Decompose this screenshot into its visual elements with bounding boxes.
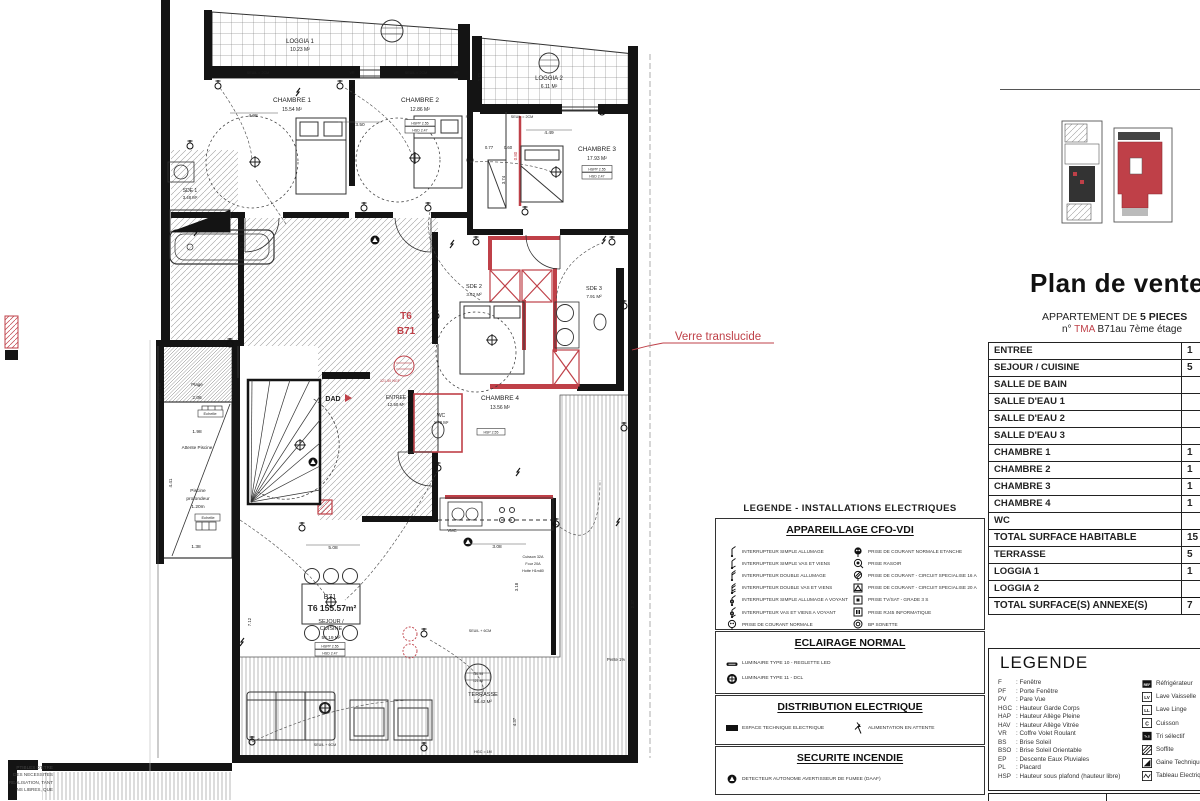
dcl-icon (726, 673, 738, 685)
plan-label: Plage (191, 382, 203, 387)
plan-label: CHAMBRE 2 (401, 97, 439, 104)
plan-label: HSPP 2.55 (588, 168, 605, 172)
margin-disclaimer-text: PTIBLES D'ETREDES NECESSITESREALISATION,… (0, 764, 53, 794)
plan-label: CHAMBRE 3 (578, 146, 616, 153)
plan-label: 1.20m (191, 504, 204, 510)
plan-label: 4.37 (512, 717, 517, 726)
appliance-item: Gaine Technique (1142, 756, 1200, 769)
sonnette-icon (852, 618, 864, 630)
abbrev-item: HAP: Hauteur Allège Pleine (998, 713, 1120, 722)
soffite-hatch-icon (1142, 745, 1152, 755)
plan-label: 4.49 (544, 130, 554, 136)
electrical-legend-item: PRISE DE COURANT - CIRCUIT SPECIALISE 20… (852, 582, 982, 594)
plan-label: PF (466, 115, 471, 119)
abbrev-item: PL: Placard (998, 764, 1120, 773)
plan-label: SEUIL = 2CM (405, 71, 428, 75)
electrical-legend-item: PRISE RASOIR (852, 557, 982, 569)
surface-table-row: CHAMBRE 21 (989, 461, 1200, 478)
plan-label: 0.60 (504, 145, 513, 150)
plan-label: HGC = 1M (474, 750, 492, 754)
electrical-legend-item: PRISE DE COURANT - CIRCUIT SPECIALISE 16… (852, 569, 982, 581)
surface-table-row: ENTREE1 (989, 342, 1200, 359)
plan-label: DAD (325, 396, 340, 403)
plan-label: HSPP 2.55 (411, 122, 428, 126)
abbrev-item: PF: Porte Fenêtre (998, 688, 1120, 697)
key-plan-location (1112, 124, 1174, 224)
outlet-icon (726, 618, 738, 630)
appliance-item: LVLave Vaisselle (1142, 690, 1200, 703)
ref-box-icon: REF (1142, 679, 1152, 689)
plan-label: 4.98 (248, 113, 258, 119)
plan-label: T6 155.57m² (308, 603, 357, 613)
plan-label: 7.12 (247, 617, 252, 626)
plan-label: HSPP 2.55 (321, 645, 338, 649)
plan-label: CHAMBRE 1 (273, 97, 311, 104)
surface-table-row: SALLE D'EAU 3 (989, 427, 1200, 444)
surface-table-row: LOGGIA 11 (989, 563, 1200, 580)
plan-label: 54.19 M² (322, 635, 341, 641)
plan-label: 0.80 (513, 151, 518, 160)
surface-table-row: LOGGIA 2 (989, 580, 1200, 597)
plan-label: 2.37 (630, 599, 635, 608)
appliance-item: Tableau Electrique (1142, 769, 1200, 782)
plan-label: LOGGIA 2 (535, 76, 563, 82)
section-distribution: DISTRIBUTION ELECTRIQUEESPACE TECHNIQUE … (715, 695, 985, 745)
electrical-legend-item: ALIMENTATION EN ATTENTE (852, 720, 982, 736)
surface-table-row: SEJOUR / CUISINE5 (989, 359, 1200, 376)
plan-label: Piscine (190, 488, 206, 494)
svg-text:C: C (1145, 721, 1149, 727)
plan-label: VMC (447, 528, 456, 533)
abbrev-legend-title: LEGENDE (1000, 653, 1088, 673)
appliance-item: Tr.STri sélectif (1142, 730, 1200, 743)
alimentation-attente-icon (852, 722, 864, 734)
subtitle-bold: 5 PIECES (1140, 311, 1187, 323)
electrical-legend-item: PRISE RJ45 INFORMATIQUE (852, 606, 982, 618)
sheet-subtitle: APPARTEMENT DE 5 PIECES (1042, 311, 1200, 323)
plan-label: 12.86 M² (410, 107, 430, 113)
gaine-triangle-icon (1142, 758, 1152, 768)
electrical-legend-item: PRISE DE COURANT NORMALE (726, 618, 848, 630)
plan-label: T6 (400, 311, 412, 322)
svg-text:Tr.S: Tr.S (1144, 735, 1149, 739)
plan-label: Verre translucide (675, 331, 761, 343)
abbrev-item: BS: Brise Soleil (998, 739, 1120, 748)
electrical-legend-panel: LEGENDE - INSTALLATIONS ELECTRIQUES APPA… (712, 500, 988, 800)
plan-label: 5.08 (328, 545, 338, 551)
plan-label: 4.41 (168, 478, 173, 487)
electrical-section-title: DISTRIBUTION ELECTRIQUE (716, 701, 984, 713)
plan-label: SEUIL = 2CM (511, 115, 534, 119)
plan-label: VR (453, 71, 458, 75)
reglette-icon (726, 658, 738, 670)
plan-label: SEJOUR / (318, 619, 344, 625)
plan-label: 1.98 (192, 429, 202, 435)
electrical-legend-item: INTERRUPTEUR SIMPLE ALLUMAGE A VOYANT (726, 594, 848, 606)
electrical-legend-item: INTERRUPTEUR VAS ET VIENS A VOYANT (726, 606, 848, 618)
pool (163, 402, 232, 558)
switch-double-vv-icon (726, 582, 738, 594)
plan-label: 1.71 (477, 72, 482, 81)
appliance-item: Soffite (1142, 743, 1200, 756)
abbrev-item: HSP: Hauteur sous plafond (hauteur libre… (998, 773, 1120, 782)
svg-text:LV: LV (1144, 695, 1150, 700)
plan-label: 13.56 M² (490, 405, 510, 411)
daaf-icon (726, 773, 738, 785)
plan-label: 17.93 M² (587, 156, 607, 162)
c-box-icon: C (1142, 718, 1152, 728)
plan-label: 121.98 (473, 672, 483, 676)
lot-tma: TMA (1074, 324, 1095, 335)
switch-voyant-icon (726, 594, 738, 606)
verre-translucide-leader (632, 343, 774, 350)
lv-box-icon: LV (1142, 692, 1152, 702)
appliance-item: REFRéfrigérateur (1142, 677, 1200, 690)
abbrev-item: F: Fenêtre (998, 679, 1120, 688)
plan-label: 3.50 (355, 122, 365, 128)
plan-label: Echelle (201, 515, 215, 520)
plan-label: 3.48 M² (183, 195, 198, 200)
plan-label: 3.62 M² (466, 292, 482, 297)
switch-vv-voyant-icon (726, 606, 738, 618)
electrical-legend-item: DETECTEUR AUTONOME AVERTISSEUR DE FUMEE … (726, 771, 848, 787)
plan-label: HSD 2.47 (589, 175, 604, 179)
plan-label: CHAMBRE 4 (481, 395, 519, 402)
surface-table-row: TOTAL SURFACE HABITABLE15 (989, 529, 1200, 546)
plan-label: SDE 2 (466, 284, 482, 290)
electrical-legend-item: INTERRUPTEUR DOUBLE VAS ET VIENS (726, 582, 848, 594)
electrical-section-title: SECURITE INCENDIE (716, 752, 984, 764)
electrical-legend-item: ESPACE TECHNIQUE ELECTRIQUE (726, 720, 848, 736)
plan-label: HGC + 1.56 (158, 383, 162, 402)
plan-label: Four 20A (525, 562, 541, 566)
plan-label: 1.70 M² (434, 420, 449, 425)
abbrev-item: BSO: Brise Soleil Orientable (998, 747, 1120, 756)
switch-vv-icon (726, 557, 738, 569)
plan-label: TERRASSE (468, 692, 498, 698)
section-eclairage: ECLAIRAGE NORMALLUMINAIRE TYPE 10 - REGL… (715, 631, 985, 694)
section-securite: SECURITE INCENDIEDETECTEUR AUTONOME AVER… (715, 746, 985, 795)
electrical-section-title: ECLAIRAGE NORMAL (716, 637, 984, 649)
plan-label: 3.74 (501, 175, 506, 184)
abbrev-item: EP: Descente Eaux Pluviales (998, 756, 1120, 765)
plan-label: profondeur (186, 496, 210, 502)
plan-label: SEUIL = 2CM (247, 71, 270, 75)
electrical-legend-item: INTERRUPTEUR SIMPLE ALLUMAGE (726, 545, 848, 557)
plan-label: HSP 2.55 (484, 431, 499, 435)
plan-label: HSD 2.47 (412, 129, 427, 133)
sheet-lot-number: n° TMA B71au 7ème étage (1062, 324, 1200, 335)
appliance-list: REFRéfrigérateurLVLave VaisselleLLLave L… (1142, 677, 1200, 783)
switch-simple-icon (726, 545, 738, 557)
plan-label: Hotte H1m80 (522, 569, 544, 573)
plan-label: 7.91 M² (586, 294, 602, 299)
plan-label: B71 (397, 326, 416, 337)
plan-label: Echelle (203, 411, 217, 416)
svg-text:REF: REF (1144, 682, 1151, 686)
plan-label: B71 (324, 594, 337, 601)
plan-label: 15.54 M² (282, 107, 302, 113)
surface-table-row: SALLE DE BAIN (989, 376, 1200, 393)
espace-technique-icon (726, 722, 738, 734)
plan-label: 1.38 (191, 544, 201, 550)
separator-line (1000, 89, 1200, 90)
subtitle-prefix: APPARTEMENT DE (1042, 311, 1140, 323)
plan-label: SDE 1 (183, 188, 198, 194)
surface-table-row: CHAMBRE 11 (989, 444, 1200, 461)
plan-label: 121.40 (473, 679, 483, 683)
sheet-title: Plan de vente (1030, 268, 1200, 299)
plan-de-vente-sheet: { "colors": {"accent_red": "#bf4048", "w… (0, 0, 1200, 800)
outlet-rasoir-icon (852, 557, 864, 569)
surface-table-row: CHAMBRE 41 (989, 495, 1200, 512)
plan-label: Cuisson 32A (523, 555, 544, 559)
plan-label: LOGGIA 1 (286, 39, 314, 45)
plan-label: VR (349, 71, 354, 75)
electrical-legend-item: PRISE DE COURANT NORMALE ETANCHE (852, 545, 982, 557)
lot-prefix: n° (1062, 324, 1074, 335)
abbreviation-legend: LEGENDE F: FenêtrePF: Porte FenêtrePV: P… (988, 648, 1200, 791)
rj45-icon (852, 606, 864, 618)
key-plan-core (1060, 118, 1106, 226)
electrical-legend-title: LEGENDE - INSTALLATIONS ELECTRIQUES (712, 503, 988, 514)
surface-table-row: CHAMBRE 31 (989, 478, 1200, 495)
plan-label: 0.77 (485, 145, 494, 150)
tableau-zigzag-icon (1142, 771, 1152, 781)
plan-label: 6.11 M² (541, 84, 558, 90)
plan-label: 0.70 (239, 241, 244, 250)
electrical-legend-item: LUMINAIRE TYPE 11 - DCL (726, 671, 848, 686)
outlet-20a-icon (852, 582, 864, 594)
lot-suffix: B71au 7ème étage (1095, 324, 1182, 335)
plan-label: 10.23 M² (290, 47, 310, 53)
plan-label: CUISINE (320, 626, 343, 632)
surface-table: ENTREE1SEJOUR / CUISINE5SALLE DE BAINSAL… (988, 342, 1200, 615)
appliance-item: LLLave Linge (1142, 703, 1200, 716)
plan-label: SEUIL + 6CM (314, 743, 337, 747)
plan-label: 3.08 (492, 544, 502, 550)
abbrev-item: HAV: Hauteur Allège Vitrée (998, 722, 1120, 731)
electrical-legend-item: INTERRUPTEUR DOUBLE ALLUMAGE (726, 569, 848, 581)
plan-label: 12.50 M² (388, 402, 406, 407)
surface-table-row: TOTAL SURFACE(S) ANNEXE(S)7 (989, 597, 1200, 615)
plan-label: SDE 3 (586, 286, 602, 292)
switch-double-icon (726, 569, 738, 581)
electrical-legend-item: BP SONETTE (852, 618, 982, 630)
plan-label: HSD 2.47 (322, 652, 337, 656)
plan-label: WC (437, 413, 446, 419)
appliance-item: CCuisson (1142, 717, 1200, 730)
surface-table-row: SALLE D'EAU 1 (989, 393, 1200, 410)
outlet-etanche-icon (852, 545, 864, 557)
plan-label: SEUIL + 6CM (469, 629, 492, 633)
abbrev-item: VR: Coffre Volet Roulant (998, 730, 1120, 739)
surface-table-row: TERRASSE5 (989, 546, 1200, 563)
plan-label: 3.18 (514, 582, 519, 591)
surface-table-row: SALLE D'EAU 2 (989, 410, 1200, 427)
abbrev-item: HGC: Hauteur Garde Corps (998, 705, 1120, 714)
electrical-section-title: APPAREILLAGE CFO-VDI (716, 524, 984, 536)
outlet-16a-icon (852, 569, 864, 581)
svg-text:LL: LL (1144, 708, 1150, 713)
abbrev-list: F: FenêtrePF: Porte FenêtrePV: Pare VueH… (998, 679, 1120, 782)
trs-box-icon: Tr.S (1142, 731, 1152, 741)
electrical-legend-item: LUMINAIRE TYPE 10 - REGLETTE LED (726, 656, 848, 671)
plan-label: Attente Piscine (182, 445, 213, 450)
plan-label: 2.06 (192, 395, 202, 401)
abbrev-item: PV: Pare Vue (998, 696, 1120, 705)
electrical-legend-item: INTERRUPTEUR SIMPLE VAS ET VIENS (726, 557, 848, 569)
section-appareillage: APPAREILLAGE CFO-VDIINTERRUPTEUR SIMPLE … (715, 518, 985, 630)
tv-sat-icon (852, 594, 864, 606)
plan-label: Pente 1% (607, 657, 625, 662)
plan-label: 58.42 M² (474, 699, 492, 704)
surface-table-row: WC (989, 512, 1200, 529)
electrical-legend-item: PRISE TV/SAT - GRADE 3 S (852, 594, 982, 606)
ll-box-icon: LL (1142, 705, 1152, 715)
plan-label: 121.50 NGF (380, 379, 401, 383)
plan-label: ENTREE (386, 395, 407, 401)
